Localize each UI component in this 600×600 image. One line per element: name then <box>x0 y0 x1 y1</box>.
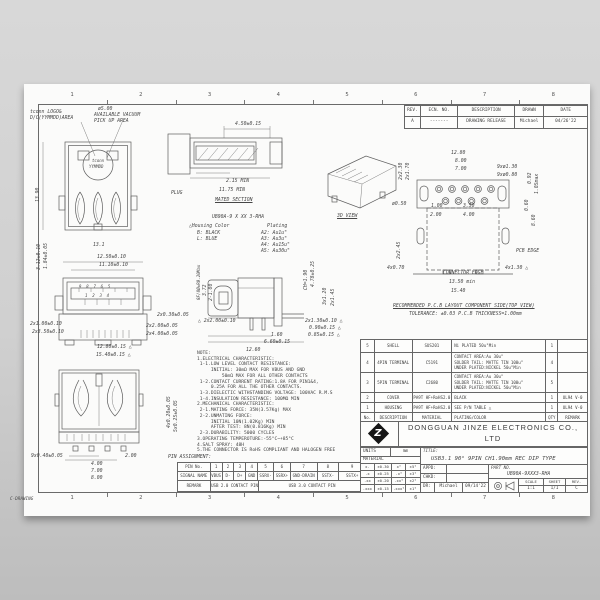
latch-wings <box>73 380 123 416</box>
part-no-area: PART NO. UB90A-9XXX3-RHA <box>489 465 587 479</box>
units-label: UNITS <box>361 448 391 456</box>
revision-table: REV.ECN. NO.DESCRIPTIONDRAWNDATEA-------… <box>404 105 588 129</box>
revision-cell: 04/26'22 <box>544 117 587 128</box>
dim-label: 9x0.40±0.05 <box>31 454 63 460</box>
tolerance-cell: x. <box>361 464 375 470</box>
dim-label: 2x2.00±0.05 <box>146 324 178 330</box>
bom-cell: PA9T HF+RoHS2.0 <box>413 403 453 412</box>
projection-cell <box>489 479 519 492</box>
pin-cell: D+ <box>234 472 246 480</box>
revision-cell: ------- <box>421 117 459 128</box>
bom-cell: 4PIN TERMINAL <box>375 353 413 372</box>
dim-label: 0.92 <box>528 172 534 184</box>
pin-cell: SSTX- <box>318 472 340 480</box>
spring-contacts <box>76 192 121 224</box>
dim-label: 5x0.25±0.05 <box>174 400 180 432</box>
pad-holes <box>436 186 495 205</box>
revision-cell: Michael <box>515 117 545 128</box>
dim-label: 3.72 <box>203 284 209 296</box>
sheet-label: SHEET <box>544 479 566 485</box>
dim-label: 2x1.30±0.10 △ <box>305 319 343 325</box>
dim-label: 0.90±0.15 △ <box>309 326 341 332</box>
scale-label: SCALE <box>519 479 544 485</box>
pin-assignment-title: PIN ASSIGNMENT: <box>168 455 211 461</box>
frame-column-number: 5 <box>345 92 348 98</box>
frame-column-number: 3 <box>208 92 211 98</box>
dim-label: 15.40 <box>451 289 465 295</box>
bom-cell: 1 <box>361 403 375 412</box>
revision-cell: ECN. NO. <box>421 106 459 116</box>
pin-cell: 4 <box>246 463 258 471</box>
rev-label: REV. <box>566 479 587 485</box>
bom-cell: BLACK <box>452 393 546 402</box>
mated-section-drawing <box>166 126 292 180</box>
frame-column-number: 6 <box>414 92 417 98</box>
pin-cell: USB 3.0 CONTACT PIN <box>259 481 365 491</box>
bom-cell: SUS201 <box>413 340 453 352</box>
dim-label: 7.00 <box>91 469 103 475</box>
company-logo: Z <box>361 422 399 446</box>
tolerance-cell: .xx <box>361 478 375 484</box>
tolerance-row: .xx±0.20.xx°±2° <box>361 478 420 485</box>
bom-cell: 1 <box>546 393 558 402</box>
view-caption: 3D VIEW <box>337 214 357 220</box>
bom-cell: SEE P/N TABLE △ <box>452 403 546 412</box>
dim-label: 2x2.45 <box>397 242 403 259</box>
pin-cell: PIN No. <box>178 463 211 471</box>
pin-cell: 1 <box>211 463 223 471</box>
bom-cell: SHELL <box>375 340 413 352</box>
bom-cell: UL94 V-0 <box>558 393 587 402</box>
pin-cell: SIGNAL NAME <box>178 472 211 480</box>
title-block: UNITS mm MATERIAL x.±0.30x°±5°.x±0.25.x°… <box>360 447 588 493</box>
company-name: DONGGUAN JINZE ELECTRONICS CO., LTD <box>399 423 587 444</box>
part-code: UB90A-9 X XX 3-RHA <box>212 215 264 221</box>
dim-label: 2-1.00 <box>209 284 215 301</box>
bom-cell: 5 <box>361 340 375 352</box>
dim-label: 13.50 min <box>449 280 475 286</box>
pin-row: SIGNAL NAMEVBUSD-D+GNDSSRX-SSRX+GND-DRAI… <box>178 472 365 481</box>
plating-option: A4: Au15u" <box>261 243 290 249</box>
frame-tick <box>451 493 452 497</box>
dim-label: 4x1.30 △ <box>505 266 528 272</box>
dim-label: 2x1.00±0.10 <box>30 322 62 328</box>
pin-cell: 2 <box>223 463 235 471</box>
dim-label: 3.12±0.10 <box>37 244 43 270</box>
pcb-layout-drawing <box>413 176 513 286</box>
logo-date-text: YYMMDD <box>89 165 103 170</box>
rev-value: C <box>566 486 587 492</box>
dim-label: 4.00 <box>91 462 103 468</box>
pin-row: PIN No.123456789 <box>178 463 365 472</box>
pin-assignment-table: PIN No.123456789SIGNAL NAMEVBUSD-D+GNDSS… <box>177 462 366 492</box>
frame-column-number: 2 <box>139 92 142 98</box>
frame-column-number: 6 <box>414 495 417 501</box>
frame-tick <box>107 100 108 104</box>
dim-label: 4.00 <box>463 213 475 219</box>
dim-label: 2x1.45 <box>331 289 337 306</box>
bom-cell <box>558 340 587 352</box>
pcb-edge-label: PCB EDGE <box>516 249 539 255</box>
frame-column-number: 8 <box>552 495 555 501</box>
dim-label: 1.00 <box>431 204 443 210</box>
housing-option: B: BLACK <box>197 231 220 237</box>
dim-label: 13.90 <box>36 188 42 202</box>
plating-option: A5: Au30u" <box>261 249 290 255</box>
frame-column-number: 7 <box>483 495 486 501</box>
bom-cell <box>558 373 587 392</box>
revision-cell: A <box>405 117 421 128</box>
title-label: TITLE: <box>423 449 438 454</box>
frame-tick <box>451 100 452 104</box>
pin-cell: REMARK <box>178 481 211 491</box>
tolerance-cell: x° <box>392 464 406 470</box>
frame-tick <box>176 100 177 104</box>
bom-row: 44PIN TERMINALC5191CONTACT AREA:Au 30u" … <box>361 353 587 373</box>
bom-row: 1HOUSINGPA9T HF+RoHS2.0SEE P/N TABLE △1U… <box>361 403 587 413</box>
pin-cell: 5 <box>258 463 274 471</box>
frame-tick <box>313 100 314 104</box>
frame-column-number: 5 <box>345 495 348 501</box>
plating-option: A3: Au3u" <box>261 237 287 243</box>
bom-cell: UL94 V-0 <box>558 403 587 412</box>
revision-row: A-------DRAWING RELEASEMichael04/26'22 <box>405 117 587 128</box>
dim-label: 4x0.20±0.05 <box>167 396 173 428</box>
dim-label: △ 2x2.00±0.10 <box>198 319 236 325</box>
dim-label: 13.1 <box>93 243 105 249</box>
scale-grid: SCALE SHEET REV. 1:1 1/1 C <box>519 479 587 492</box>
bom-cell: 5 <box>546 373 558 392</box>
dim-label: 1.84±0.05 <box>44 243 50 269</box>
dim-label: 2x1.70 <box>406 163 412 180</box>
dim-label: 12.50±0.10 <box>97 255 126 261</box>
dim-label: 2x2.30 <box>399 163 405 180</box>
pcb-tolerance-note: TOLERANCE: ±0.03 P.C.B THICKNESS=1.00mm <box>409 312 522 318</box>
bom-cell: 5PIN TERMINAL <box>375 373 413 392</box>
revision-cell: DRAWING RELEASE <box>458 117 514 128</box>
revision-cell: DATE <box>544 106 587 116</box>
tolerance-cell: .xxx° <box>392 485 406 492</box>
bom-cell: 4 <box>546 353 558 372</box>
frame-column-number: 3 <box>208 495 211 501</box>
company-band: Z DONGGUAN JINZE ELECTRONICS CO., LTD <box>360 421 588 447</box>
plating-option: A2: Au1u" <box>261 231 287 237</box>
dim-label: 2.15 MIN <box>226 179 249 185</box>
bom-row: 2COVERPA9T HF+RoHS2.0BLACK1UL94 V-0 <box>361 393 587 403</box>
dim-label: 8.00 <box>455 159 467 165</box>
logo-callout-2: D/C(YYMMDD)AREA <box>30 116 73 122</box>
chkd-label: CHKD: <box>421 474 447 482</box>
bom-cell: COVER <box>375 393 413 402</box>
revision-row: REV.ECN. NO.DESCRIPTIONDRAWNDATE <box>405 106 587 117</box>
pin-numbers-top: 9 8 7 6 5 <box>79 285 110 290</box>
material-label: MATERIAL <box>361 457 420 463</box>
dim-label: 2x0.30±0.05 <box>157 313 189 319</box>
tolerance-row: .x±0.25.x°±3° <box>361 471 420 478</box>
pin-cell: SSRX+ <box>274 472 291 480</box>
scale-value: 1:1 <box>519 486 544 492</box>
plug-label: PLUG <box>171 191 183 197</box>
bom-cell: 1 <box>546 340 558 352</box>
vacuum-callout-2: AVAILABLE VACUUM <box>94 113 140 119</box>
revision-cell: DRAWN <box>515 106 545 116</box>
frame-column-number: 2 <box>139 495 142 501</box>
drawing-sheet-photo: 1122334455667788 C-DRAWING REV.ECN. NO.D… <box>0 0 600 600</box>
dim-label: 8F/8Ø±R0.20Max <box>197 265 202 300</box>
tolerance-grid: x.±0.30x°±5°.x±0.25.x°±3°.xx±0.20.xx°±2°… <box>361 464 420 492</box>
dim-label: 0.60 <box>525 199 531 211</box>
tolerance-cell: ±5° <box>406 464 420 470</box>
dim-label: 9xø0.80 <box>497 173 517 179</box>
bom-cell: PA9T HF+RoHS2.0 <box>413 393 453 402</box>
dim-label: CH=1.90 <box>304 270 310 290</box>
dim-label: 6.60±0.15 <box>264 340 290 346</box>
frame-tick <box>313 493 314 497</box>
drawing-title: USB3.1 90° 9PIN CH1.90mm REC DIP TYPE <box>431 456 556 463</box>
corner-label: C-DRAWING <box>10 497 33 502</box>
bom-cell: HOUSING <box>375 403 413 412</box>
tolerance-cell: .xxx <box>361 485 375 492</box>
dim-label: 0.85±0.15 △ <box>308 333 340 339</box>
drawn-by: Michael <box>435 483 463 492</box>
pin-cell: GND <box>246 472 258 480</box>
title-block-left: UNITS mm MATERIAL x.±0.30x°±5°.x±0.25.x°… <box>361 448 421 492</box>
bom-row: 35PIN TERMINALC2680CONTACT AREA:Au 30u" … <box>361 373 587 393</box>
connector-edge-label: CONNECTOR EDGE <box>443 271 483 277</box>
bom-row: 5SHELLSUS201Ni PLATED 50u"Min1 <box>361 340 587 353</box>
revision-cell: REV. <box>405 106 421 116</box>
note-line: 5.THE CONNECTOR IS RoHS COMPLIANT AND HA… <box>197 448 335 454</box>
dim-label: 2.00 <box>430 213 442 219</box>
part-no-value: UB90A-9XXX3-RHA <box>507 472 550 478</box>
bom-cell: 4 <box>361 353 375 372</box>
frame-tick <box>519 493 520 497</box>
pin-cell: GND-DRAIN <box>291 472 318 480</box>
tolerance-cell: ±3° <box>406 471 420 477</box>
bottom-view-drawing <box>55 366 147 460</box>
title-area: TITLE: USB3.1 90° 9PIN CH1.90mm REC DIP … <box>421 448 587 465</box>
housing-option: L: BLUE <box>197 237 217 243</box>
pin-cell: 3 <box>234 463 246 471</box>
part-no-label: PART NO. <box>491 466 511 471</box>
frame-column-number: 4 <box>277 495 280 501</box>
dim-label: 12.80 <box>451 151 465 157</box>
side-view-drawing <box>206 274 306 342</box>
frame-column-number: 8 <box>552 92 555 98</box>
logo-diamond-icon: Z <box>368 423 389 444</box>
dim-label: 4.78±0.25 <box>311 261 317 287</box>
bom-cell: CONTACT AREA:Au 30u" SOLDER TAIL: MATTE … <box>452 373 546 392</box>
vacuum-callout-3: PICK UP AREA <box>94 119 129 125</box>
signoff-column: APPD: CHKD: DR: Michael 09/14'22 <box>421 465 489 492</box>
frame-tick <box>382 100 383 104</box>
vacuum-callout: ø5.00 <box>98 107 112 113</box>
tolerance-cell: ±1° <box>406 485 420 492</box>
dim-label: 11.10±0.10 <box>99 263 128 269</box>
dim-label: 3x1.20 <box>323 288 329 305</box>
pin-numbers-bottom: 1 2 3 4 <box>85 294 109 299</box>
tolerance-cell: ±2° <box>406 478 420 484</box>
tolerance-row: .xxx±0.15.xxx°±1° <box>361 485 420 492</box>
pin-cell: D- <box>223 472 235 480</box>
logo-text: tconn <box>92 159 104 164</box>
dim-label: 11.75 MIN <box>219 188 245 194</box>
bom-cell: C2680 <box>413 373 453 392</box>
dim-label: 1.05max <box>535 174 541 194</box>
tolerance-cell: .xx° <box>392 478 406 484</box>
dim-label: 8.60 <box>532 214 538 226</box>
dim-label: 12.80±0.15 △ <box>97 345 132 351</box>
bom-cell: CONTACT AREA:Au 30u" SOLDER TAIL: MATTE … <box>452 353 546 372</box>
top-view-drawing <box>55 134 145 246</box>
tolerance-cell: ±0.30 <box>375 464 393 470</box>
pin-cell: 8 <box>318 463 340 471</box>
logo-callout: tconn LOGO& <box>30 110 62 116</box>
notes-block: NOTE:1.ELECTRICAL CHARACTERISTIC: 1-1.LO… <box>197 351 335 454</box>
dim-label: 7.00 <box>455 167 467 173</box>
third-angle-projection-icon <box>492 480 516 492</box>
pcb-note: RECOMMENDED P.C.B LAYOUT COMPONENT SIDE(… <box>393 304 535 310</box>
bom-cell <box>558 353 587 372</box>
tolerance-cell: .x° <box>392 471 406 477</box>
bom-table: 5SHELLSUS201Ni PLATED 50u"Min144PIN TERM… <box>360 339 588 423</box>
pin-cell: VBUS <box>211 472 223 480</box>
bom-cell: 3 <box>361 373 375 392</box>
sheet-value: 1/1 <box>544 486 566 492</box>
frame-tick <box>176 493 177 497</box>
frame-tick <box>382 493 383 497</box>
pin-cell: 6 <box>274 463 291 471</box>
bom-cell: Ni PLATED 50u"Min <box>452 340 546 352</box>
iso-view-drawing <box>316 146 404 212</box>
title-block-right: TITLE: USB3.1 90° 9PIN CH1.90mm REC DIP … <box>421 448 587 492</box>
dim-label: 3.50 <box>463 204 475 210</box>
plating-title: Plating <box>267 224 287 230</box>
frame-column-number: 1 <box>70 495 73 501</box>
appd-label: APPD: <box>421 465 447 473</box>
frame-column-number: 7 <box>483 92 486 98</box>
dim-label: 1.60 <box>271 333 283 339</box>
tolerance-cell: ±0.20 <box>375 478 393 484</box>
bom-cell: C5191 <box>413 353 453 372</box>
dim-label: 8.00 <box>91 476 103 482</box>
dim-label: 15.40±0.15 △ <box>96 353 131 359</box>
frame-tick <box>519 100 520 104</box>
dim-label: 2x3.50±0.10 <box>32 330 64 336</box>
dim-label: 4x0.70 <box>387 266 404 272</box>
frame-tick <box>107 493 108 497</box>
view-caption: MATED SECTION <box>215 198 253 204</box>
bom-cell: 1 <box>546 403 558 412</box>
tolerance-row: x.±0.30x°±5° <box>361 464 420 471</box>
units-value: mm <box>391 448 420 456</box>
bom-cell: 2 <box>361 393 375 402</box>
frame-tick <box>244 100 245 104</box>
tolerance-cell: .x <box>361 471 375 477</box>
frame-column-number: 1 <box>70 92 73 98</box>
pin-cell: 7 <box>291 463 318 471</box>
partno-column: PART NO. UB90A-9XXX3-RHA SCALE <box>489 465 587 492</box>
dim-label: 2x4.00±0.05 <box>146 332 178 338</box>
dim-label: 2.00 <box>125 454 137 460</box>
tolerance-cell: ±0.15 <box>375 485 393 492</box>
dr-label: DR: <box>421 483 435 492</box>
note-line: 1-3.DIELECTIC WITHSTANDING VOLTAGE: 100V… <box>197 391 335 397</box>
pin-row: REMARKUSB 2.0 CONTACT PINUSB 3.0 CONTACT… <box>178 481 365 491</box>
dim-label: ø0.50 <box>392 202 406 208</box>
frame-column-number: 4 <box>277 92 280 98</box>
revision-cell: DESCRIPTION <box>458 106 514 116</box>
dim-label: 4.50±0.15 <box>235 122 261 128</box>
tolerance-cell: ±0.25 <box>375 471 393 477</box>
pin-cell: SSRX- <box>258 472 274 480</box>
dim-label: 9xø1.30 <box>497 165 517 171</box>
frame-tick <box>244 493 245 497</box>
drawn-date: 09/14'22 <box>463 483 488 492</box>
housing-color-title: △Housing Color <box>189 224 229 230</box>
pin-cell: USB 2.0 CONTACT PIN <box>211 481 259 491</box>
